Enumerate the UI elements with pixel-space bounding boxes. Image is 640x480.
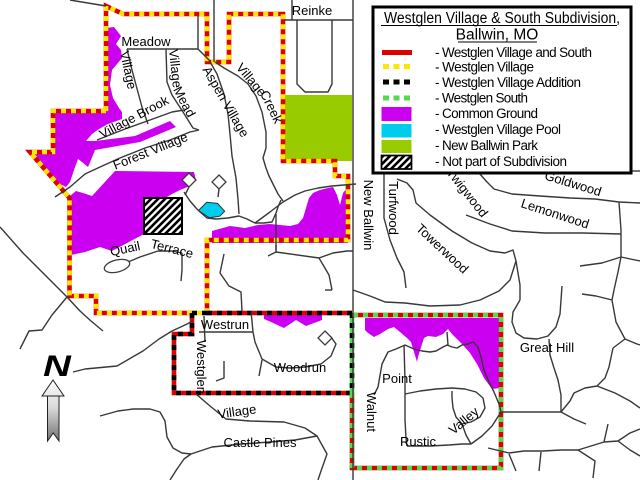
- svg-text:Walnut: Walnut: [364, 392, 379, 432]
- svg-text:New Ballwin: New Ballwin: [361, 180, 376, 251]
- svg-text:Ballwin, MO: Ballwin, MO: [456, 27, 539, 44]
- svg-text:Westglen Village & South Subdi: Westglen Village & South Subdivision,: [384, 10, 620, 27]
- svg-text:Point: Point: [382, 371, 412, 386]
- svg-text:- New Ballwin Park: - New Ballwin Park: [435, 138, 538, 153]
- svg-text:- Common Ground: - Common Ground: [435, 106, 538, 121]
- svg-text:Reinke: Reinke: [292, 3, 332, 18]
- svg-text:Rustic: Rustic: [400, 434, 437, 449]
- svg-text:N: N: [43, 350, 72, 383]
- svg-text:Westglen: Westglen: [194, 340, 209, 394]
- svg-text:Great Hill: Great Hill: [520, 340, 574, 355]
- svg-text:Meadow: Meadow: [121, 34, 171, 49]
- svg-text:- Westglen South: - Westglen South: [435, 91, 528, 106]
- svg-text:- Westglen Village and South: - Westglen Village and South: [435, 45, 592, 60]
- svg-text:Woodrun: Woodrun: [274, 360, 327, 375]
- svg-text:Castle Pines: Castle Pines: [224, 435, 297, 450]
- svg-text:Westrun: Westrun: [201, 317, 249, 332]
- svg-text:Turfwood: Turfwood: [386, 181, 401, 235]
- svg-text:- Westglen Village Pool: - Westglen Village Pool: [435, 122, 561, 137]
- svg-text:- Westglen Village Addition: - Westglen Village Addition: [435, 75, 581, 90]
- svg-text:- Not part of Subdivision: - Not part of Subdivision: [435, 154, 567, 169]
- svg-text:- Westglen Village: - Westglen Village: [435, 60, 534, 75]
